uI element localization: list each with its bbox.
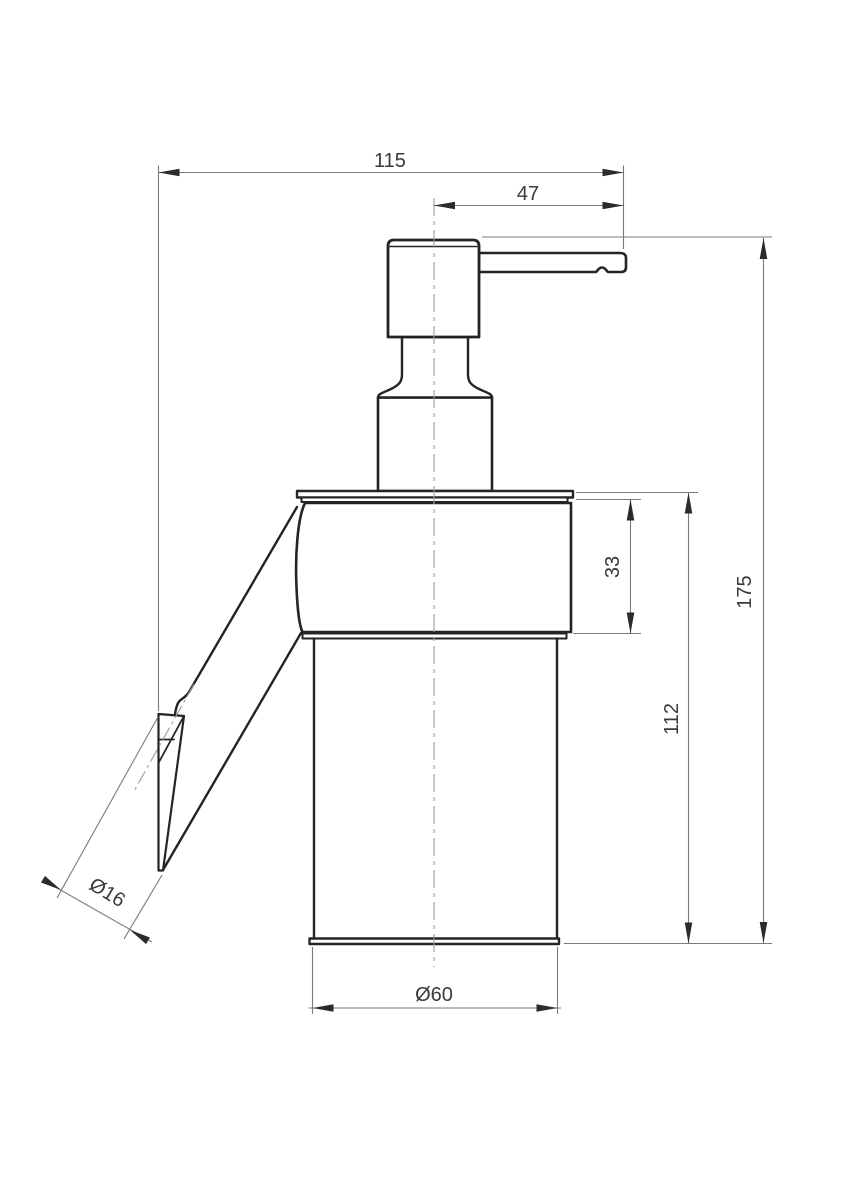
dim-total-width-label: 115 (374, 150, 406, 172)
technical-drawing: 115 47 175 112 33 (0, 0, 849, 1200)
wall-plate (159, 714, 185, 871)
dim-total-height: 175 (734, 238, 767, 943)
dim-spout-reach-label: 47 (517, 183, 539, 205)
pump-spout (479, 253, 626, 272)
dim-mount-diameter-label: Ø16 (85, 874, 129, 912)
dim-spout-reach: 47 (434, 183, 624, 209)
drawing-page: 115 47 175 112 33 (0, 0, 849, 1200)
dim-body-height-label: 112 (661, 703, 683, 735)
glass-bottle-walls (314, 639, 557, 939)
ext-mount-upper (57, 717, 158, 898)
pump-neck (378, 337, 492, 398)
dim-bottle-diameter: Ø60 (309, 984, 562, 1012)
dim-bottle-diameter-label: Ø60 (415, 984, 453, 1006)
dim-body-height: 112 (661, 493, 692, 944)
dispenser-outline (133, 240, 626, 944)
pump-housing (378, 398, 492, 492)
dim-total-height-label: 175 (734, 575, 756, 608)
dim-holder-height-label: 33 (602, 556, 624, 578)
bracket-arm-upper-edge (175, 507, 297, 715)
dim-holder-height: 33 (602, 500, 634, 634)
bracket-arm-lower-edge (163, 633, 301, 870)
dim-total-width: 115 (159, 150, 624, 176)
dim-mount-diameter: Ø16 (41, 874, 152, 944)
